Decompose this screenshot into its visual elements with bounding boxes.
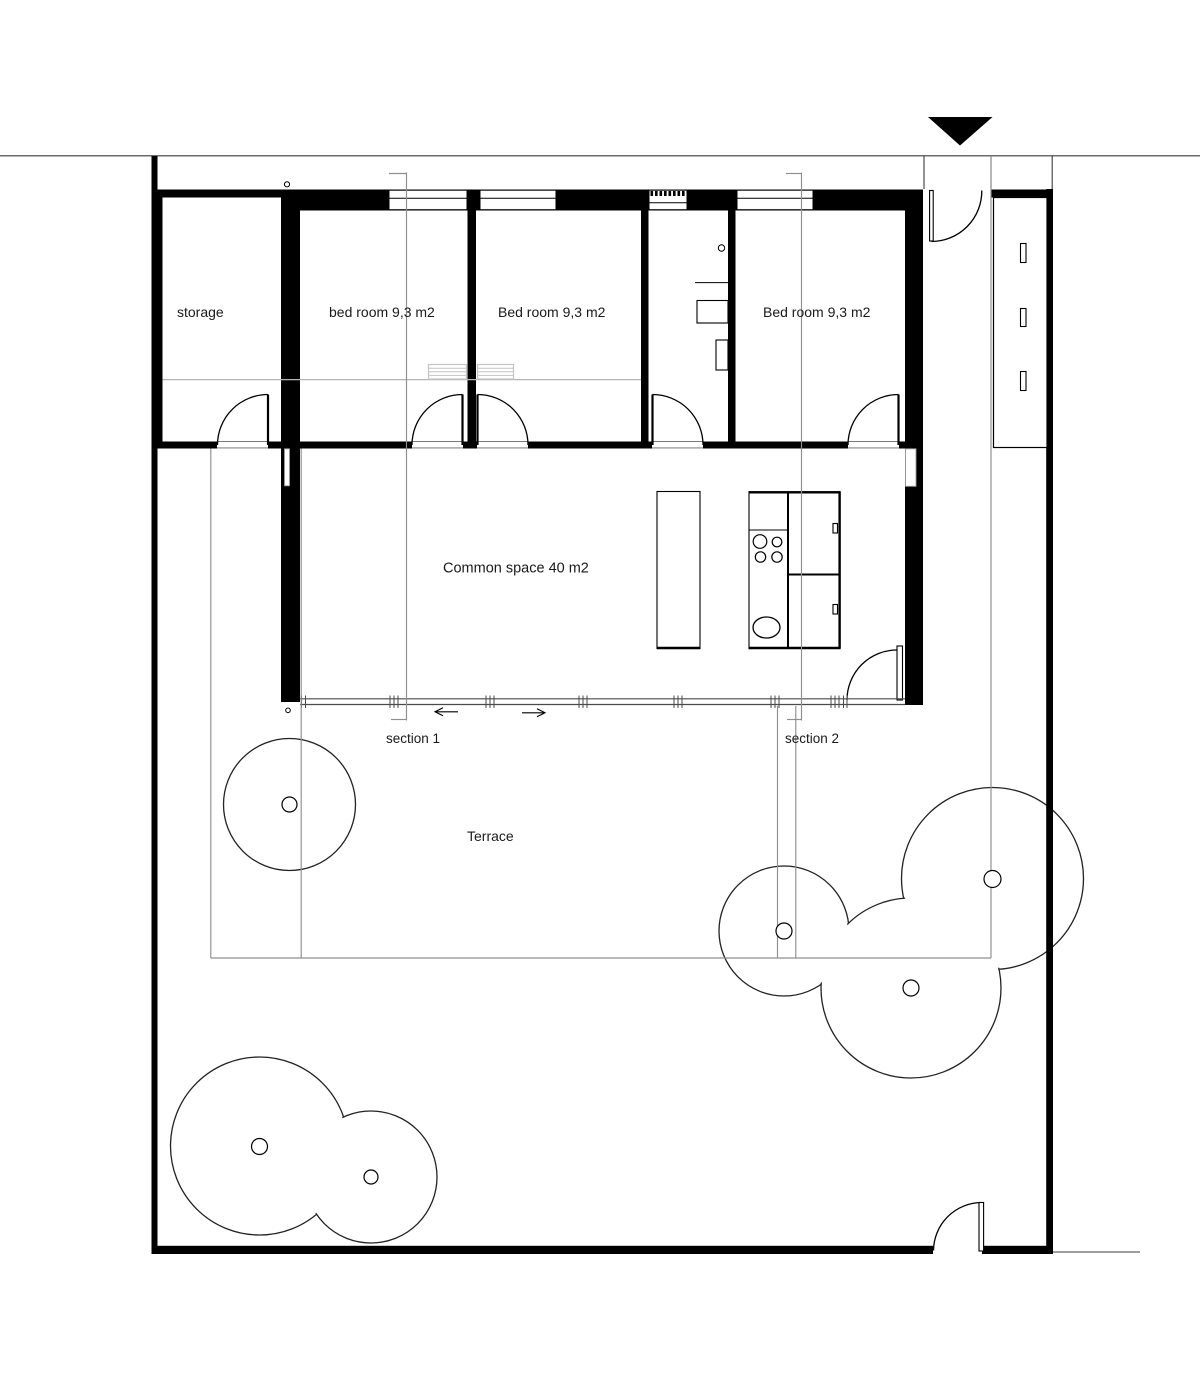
wall-storage-east: [281, 190, 300, 449]
wall-partition-bed2-bath: [641, 198, 649, 449]
appliance-hinge: [833, 524, 838, 534]
tree-trunk: [984, 871, 1001, 888]
garden-gate-arc: [934, 1203, 982, 1251]
wall-partition-bed1-bed2: [468, 198, 477, 449]
room-label-bedroom3: Bed room 9,3 m2: [763, 304, 871, 320]
door-arc-terrace: [847, 650, 897, 700]
section-label-1: section 1: [386, 731, 440, 746]
door-leaf-entrance: [930, 191, 934, 242]
closet-handle: [1021, 244, 1027, 263]
site-fence-bottom: [982, 1246, 1053, 1254]
wall-partition-bath-bed3: [728, 198, 736, 449]
room-label-bedroom2: Bed room 9,3 m2: [498, 304, 606, 320]
building-walls: [153, 190, 1053, 706]
sliding-direction-arrow-left-icon: [435, 708, 458, 716]
wall-common-east: [905, 449, 923, 706]
door-arc-bedroom3: [848, 395, 899, 446]
window-bedroom2: [480, 190, 556, 210]
wall-closet-top: [991, 190, 1053, 198]
door-arc-storage: [218, 395, 269, 446]
site-fence-bottom: [152, 1246, 934, 1254]
washbasin: [697, 301, 728, 324]
closet-handle: [1021, 309, 1027, 327]
section-label-2: section 2: [785, 731, 839, 746]
entry-closet: [994, 198, 1048, 448]
door-leaf-terrace: [897, 646, 903, 700]
room-label-common-space: Common space 40 m2: [443, 561, 589, 577]
toilet: [716, 340, 728, 370]
valve-icon: [718, 245, 724, 251]
tree-cluster-right: [719, 788, 1084, 1079]
wall-storage-top: [153, 190, 300, 198]
radiators: [163, 365, 642, 380]
garden-gate-leaf: [979, 1203, 984, 1252]
wall-west: [153, 190, 163, 449]
wall-common-west: [281, 449, 300, 703]
room-label-storage: storage: [177, 304, 224, 320]
wall-bedroom3-east: [905, 198, 923, 449]
door-arc-bathroom: [653, 395, 704, 446]
room-label-bedroom1: bed room 9,3 m2: [329, 304, 435, 320]
window-common-west: [285, 449, 290, 486]
door-arc-bedroom2: [478, 395, 529, 446]
room-label-terrace: Terrace: [467, 828, 514, 844]
tree-trunk: [776, 923, 792, 939]
sliding-direction-arrow-right-icon: [522, 709, 545, 717]
window-bathroom: [649, 190, 687, 210]
tree-trunk: [364, 1170, 378, 1184]
tree-cluster-bottom-left: [171, 1057, 438, 1243]
entrance-marker-icon: [928, 117, 993, 146]
bathroom-fixtures: [695, 245, 728, 370]
tree-trunk: [903, 980, 919, 996]
kitchen-sink: [753, 617, 780, 638]
floor-plan-canvas: storage bed room 9,3 m2 Bed room 9,3 m2 …: [0, 0, 1200, 1400]
kitchen: [657, 492, 841, 649]
tree-trunk: [282, 797, 297, 812]
window-bedroom1: [389, 190, 467, 210]
door-arc-bedroom1: [412, 395, 463, 446]
kitchen-island: [657, 492, 700, 649]
door-arc-entrance: [931, 191, 981, 242]
drain-dot: [286, 708, 291, 713]
drain-dot: [284, 182, 289, 187]
appliance-hinge: [833, 605, 838, 615]
tree-trunk: [252, 1139, 268, 1155]
closet-handle: [1021, 372, 1027, 391]
window-common-east: [906, 449, 917, 487]
facade-mullions: [302, 696, 848, 709]
